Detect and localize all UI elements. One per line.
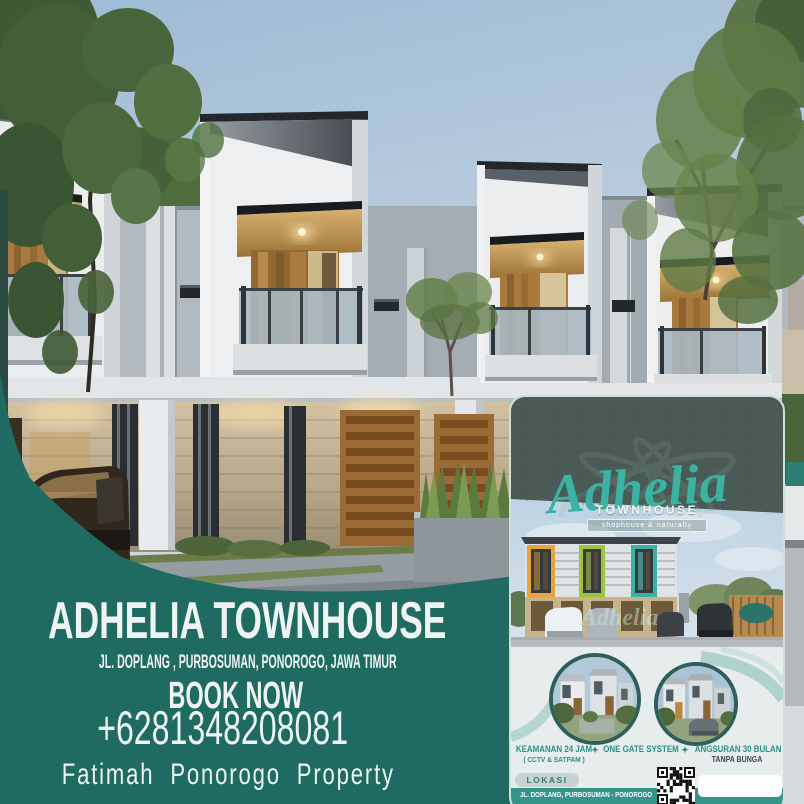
svg-text:Adhelia: Adhelia xyxy=(579,605,658,631)
